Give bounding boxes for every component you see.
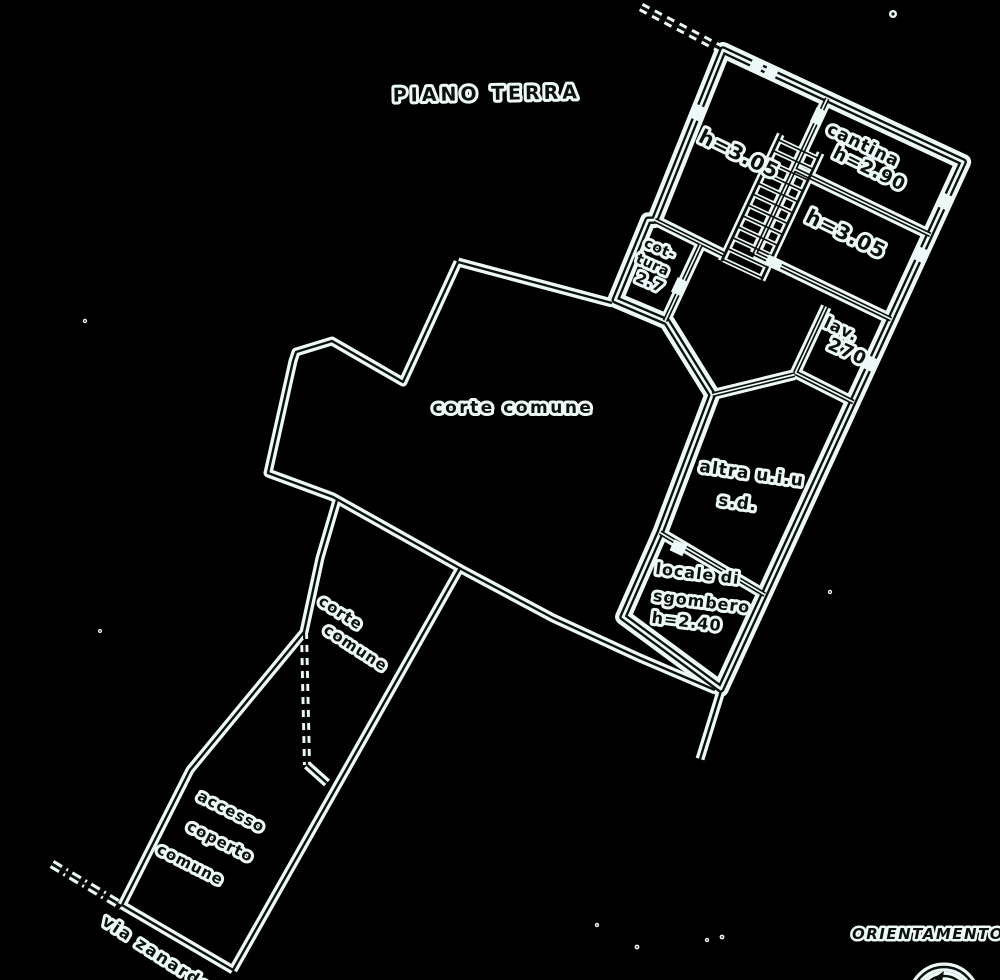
page-title: PIANO TERRA	[393, 81, 582, 106]
corte-comune-main-label: corte comune	[433, 398, 594, 418]
floor-plan-drawing: PIANO TERRA h=3.05 cantina h=2.90 h=3.05…	[0, 0, 1000, 980]
orientation-label: ORIENTAMENTO	[852, 925, 1000, 943]
floor-plan-page: PIANO TERRA h=3.05 cantina h=2.90 h=3.05…	[0, 0, 1000, 980]
